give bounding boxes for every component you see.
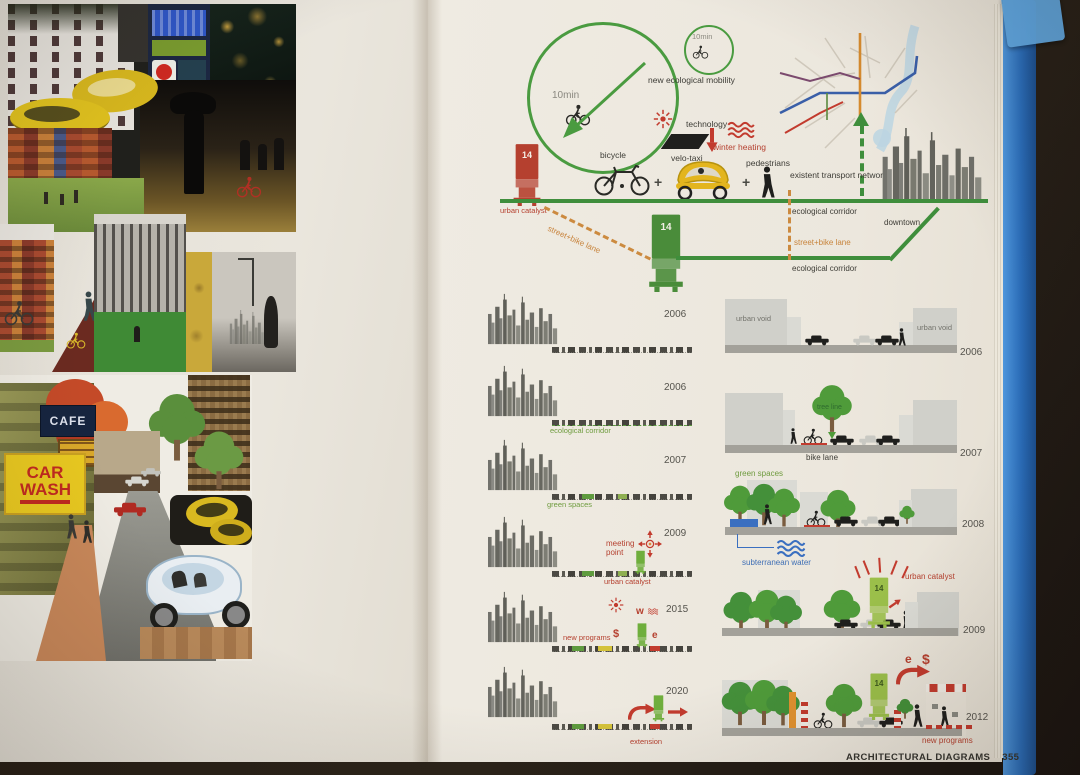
white-car-icon: [124, 475, 150, 487]
person-silhouette: [60, 194, 64, 205]
water-connector-line: [737, 534, 774, 548]
passenger-silhouette: [193, 572, 207, 588]
building-block: [913, 400, 957, 445]
pedestrian-icon: [896, 328, 907, 348]
mini-catalyst-tower: [636, 622, 648, 648]
city-skyline: [488, 660, 560, 724]
car-icon: [833, 515, 859, 527]
urban-catalyst-label: urban catalyst: [500, 207, 547, 216]
swoosh-arrow-icon: [894, 664, 932, 686]
bike-lane-label: bike lane: [806, 453, 838, 462]
tree-icon: [764, 684, 802, 728]
tree-line-label: tree line: [817, 404, 842, 412]
book-cover-edge: [1003, 0, 1036, 775]
crowd-silhouette: [258, 144, 267, 170]
pod-window: [24, 106, 80, 122]
pedestrian-icon: [80, 517, 93, 549]
distant-skyline: [214, 310, 294, 344]
road-bar: [722, 628, 958, 636]
urban-catalyst-section-label: urban catalyst: [905, 572, 955, 581]
symbol-w: w: [636, 606, 644, 618]
ecological-corridor-top-label: ecological corridor: [792, 207, 857, 216]
car-wash-sign: CAR WASH: [4, 453, 86, 515]
blue-tape: [1001, 0, 1066, 48]
ecological-corridor-bottom-label: ecological corridor: [792, 264, 857, 273]
red-car-icon: [112, 501, 148, 517]
city-skyline: [488, 434, 560, 496]
transit-arrow-dashed: [860, 126, 864, 196]
street-strip: [552, 646, 692, 652]
striped-program-bar: [801, 700, 808, 730]
red-dash-strip: [926, 725, 972, 729]
radius-arrow: [555, 55, 655, 150]
section-year: 2009: [963, 625, 985, 636]
city-skyline: [488, 288, 560, 350]
extension-row-label: extension: [630, 738, 662, 747]
velo-taxi-icon: [668, 158, 738, 200]
collage-street-render: CAFE CAR WASH: [0, 375, 252, 661]
symbol-e: e: [652, 630, 658, 642]
section-year: 2006: [960, 347, 982, 358]
building-block: [787, 317, 801, 347]
cafe-sign-text: CAFE: [50, 414, 87, 428]
colorful-rowhouses: [8, 128, 112, 180]
wave-arrow-icon: [646, 608, 660, 615]
urban-void-label: urban void: [736, 315, 771, 324]
street-bike-lane-vertical-label: street+bike lane: [794, 238, 851, 247]
new-programs-row-label: new programs: [563, 634, 611, 643]
mini-catalyst-tower: [634, 550, 647, 574]
page-spine-shadow: [412, 0, 442, 762]
pedestrian-icon: [788, 428, 798, 446]
person-silhouette: [44, 192, 48, 204]
building-block: [725, 393, 783, 445]
night-street-tile: [140, 80, 296, 232]
page-edge-stack: [994, 4, 1003, 758]
tree-icon: [899, 505, 915, 525]
street-lamp: [252, 258, 254, 306]
subterranean-water-icon: [776, 539, 806, 558]
building-window: [952, 712, 958, 717]
parked-bicycle-icon: [4, 300, 34, 326]
courtyard-lawn: [94, 312, 186, 372]
cafe-sign: CAFE: [40, 405, 96, 437]
pedestrian-icon: [910, 704, 924, 730]
crowd-silhouette: [274, 138, 284, 170]
plus-sign: +: [742, 174, 750, 190]
section-year: 2012: [966, 712, 988, 723]
ecological-corridor-line-bottom: [676, 256, 890, 260]
timeline-year: 2020: [666, 686, 688, 697]
green-spaces-row-label: green spaces: [547, 501, 592, 510]
new-programs-section-label: new programs: [922, 736, 973, 745]
section-year: 2007: [960, 448, 982, 459]
soccer-player-silhouette: [134, 326, 140, 342]
umbrella-person: [184, 110, 204, 194]
ecological-corridor-line-top: [500, 199, 988, 203]
new-ecological-mobility-label: new ecological mobility: [648, 76, 735, 86]
boardwalk: [140, 627, 252, 659]
street-strip: [552, 347, 692, 353]
green-spaces-label: green spaces: [735, 469, 783, 478]
gray-skyline-photo: [186, 252, 296, 372]
pod-window: [87, 76, 137, 99]
cyclist-icon: [692, 45, 709, 59]
street-bike-lane-vertical: [788, 190, 791, 260]
street-strip: [552, 724, 692, 730]
building-block: [911, 489, 957, 528]
collage-top: [8, 4, 296, 232]
bike-lane-symbol-icon: [66, 332, 86, 349]
plus-sign: +: [654, 174, 662, 190]
yellow-poster-strip: [186, 252, 212, 372]
downtown-skyline: [878, 128, 990, 200]
existent-network-label: existent transport network: [790, 171, 887, 181]
tower-number: 14: [650, 222, 682, 233]
section-year: 2008: [962, 519, 984, 530]
red-bicycle-icon: [236, 176, 262, 198]
spark-icon: [608, 597, 624, 613]
pedestrian-icon: [756, 166, 778, 202]
orange-program-bar: [789, 692, 796, 730]
downtown-label: downtown: [884, 218, 920, 227]
car-wash-sign-text: CAR WASH: [20, 464, 70, 504]
city-skyline: [488, 512, 560, 572]
mini-catalyst-tower: [652, 694, 665, 722]
symbol-dollar: $: [613, 628, 619, 641]
pedestrian-silhouette: [264, 296, 278, 348]
car-icon: [804, 334, 830, 346]
street-tree-icon: [192, 429, 246, 493]
billboard-blue: [152, 10, 206, 36]
sun-technology-icon: [653, 109, 673, 129]
bicycle-icon: [592, 162, 652, 196]
bw-courtyard-photo: [94, 214, 186, 372]
road-bar: [725, 345, 957, 353]
person-silhouette: [74, 190, 78, 203]
timeline-year: 2009: [664, 528, 686, 539]
bw-buildings: [94, 214, 186, 314]
road-bar: [722, 728, 962, 736]
street-lamp-arm: [238, 258, 254, 260]
right-arrow-icon: [668, 706, 688, 718]
billboard-green: [152, 40, 206, 56]
tower-number: 14: [513, 150, 541, 160]
subterranean-water-label: subterranean water: [742, 558, 811, 567]
city-skyline: [488, 586, 560, 648]
urban-void-label: urban void: [917, 324, 952, 333]
timeline-year: 2015: [666, 604, 688, 615]
transit-arrow-head: [853, 112, 869, 126]
ten-minute-label-small: 10min: [692, 33, 712, 42]
book-photo: CAFE CAR WASH 10min: [0, 0, 1080, 775]
city-skyline: [488, 360, 560, 422]
page-footer: ARCHITECTURAL DIAGRAMS 355: [846, 752, 1019, 763]
tower-number: 14: [870, 679, 888, 688]
rowhouse-strip-photo: [0, 224, 54, 352]
tower-number: 14: [870, 584, 888, 593]
heat-waves-icon: [727, 121, 755, 139]
crowd-silhouette: [240, 140, 250, 170]
winter-heating-label: winter heating: [713, 143, 766, 153]
timeline-year: 2006: [664, 382, 686, 393]
timeline-year: 2007: [664, 455, 686, 466]
velomobile-canopy: [195, 502, 228, 519]
footer-title: ARCHITECTURAL DIAGRAMS: [846, 752, 990, 763]
tree-shadow-band: [8, 4, 134, 34]
footer-page-number: 355: [1002, 752, 1019, 763]
timeline-year: 2006: [664, 309, 686, 320]
pedestrian-icon: [761, 504, 773, 527]
road-bar: [725, 445, 957, 453]
bicycle-label: bicycle: [600, 151, 626, 161]
pedestrian-icon: [64, 511, 78, 545]
urban-catalyst-row-label: urban catalyst: [604, 578, 651, 587]
velomobile-canopy: [218, 523, 245, 537]
building-block: [899, 415, 913, 445]
velomobile-wheel: [222, 601, 250, 629]
vodafone-circle: [156, 64, 172, 80]
